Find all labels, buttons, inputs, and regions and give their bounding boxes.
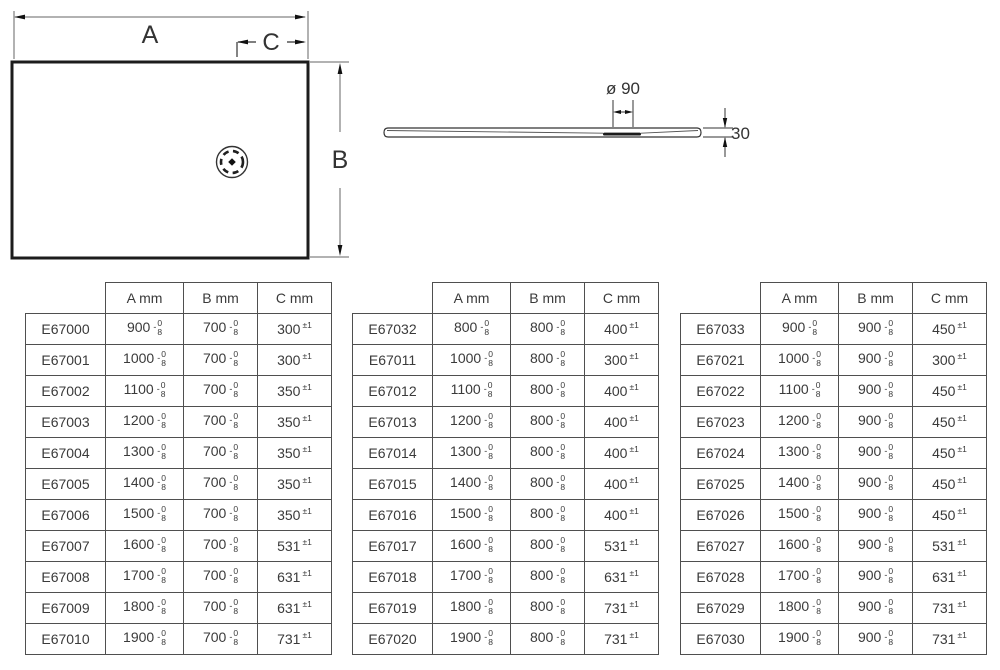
dimension-cell: 1400-08 [433,469,511,500]
dimension-cell: 800-08 [511,500,585,531]
dimension-cell: 700-08 [184,624,258,655]
dimension-cell: 900-08 [761,314,839,345]
product-code-cell: E67007 [26,531,106,562]
profile-view-drawing: ø 90 30 [375,70,775,180]
dimension-cell: 800-08 [511,469,585,500]
dimension-table-700: A mmB mmC mmE67000900-08700-08300±1E6700… [25,282,332,655]
column-header: C mm [585,283,659,314]
product-code-cell: E67032 [353,314,433,345]
dimension-cell: 900-08 [839,314,913,345]
table-corner-cell [353,283,433,314]
arrow-up-icon [338,63,343,74]
table-row: E670211000-08900-08300±1 [681,345,987,376]
product-code-cell: E67033 [681,314,761,345]
dimension-cell: 700-08 [184,531,258,562]
column-header: C mm [913,283,987,314]
dimension-cell: 700-08 [184,345,258,376]
spec-sheet: A C B [0,0,1000,670]
column-header: B mm [511,283,585,314]
product-code-cell: E67000 [26,314,106,345]
arrow-left-icon [613,110,621,114]
dimension-cell: 1600-08 [106,531,184,562]
product-code-cell: E67016 [353,500,433,531]
dimension-c-label: C [262,29,279,56]
table-corner-cell [26,283,106,314]
dimension-cell: 631±1 [913,562,987,593]
dimension-cell: 900-08 [106,314,184,345]
dimension-cell: 1200-08 [433,407,511,438]
dimension-cell: 1300-08 [433,438,511,469]
product-code-cell: E67020 [353,624,433,655]
dimension-cell: 900-08 [839,438,913,469]
dimension-cell: 1800-08 [761,593,839,624]
dimension-cell: 631±1 [258,562,332,593]
table-row: E67032800-08800-08400±1 [353,314,659,345]
dimension-cell: 731±1 [913,593,987,624]
dimension-cell: 1500-08 [761,500,839,531]
dimension-cell: 900-08 [839,345,913,376]
table-row: E670261500-08900-08450±1 [681,500,987,531]
dimension-cell: 900-08 [839,376,913,407]
product-code-cell: E67008 [26,562,106,593]
dimension-cell: 900-08 [839,593,913,624]
table-row: E670271600-08900-08531±1 [681,531,987,562]
dimension-table-800: A mmB mmC mmE67032800-08800-08400±1E6701… [352,282,659,655]
product-code-cell: E67018 [353,562,433,593]
dimension-cell: 800-08 [511,593,585,624]
dimension-cell: 400±1 [585,469,659,500]
dimension-cell: 1900-08 [433,624,511,655]
dimension-cell: 1700-08 [106,562,184,593]
dimension-thickness [703,108,733,157]
table-row: E670141300-08800-08400±1 [353,438,659,469]
product-code-cell: E67030 [681,624,761,655]
dimension-cell: 731±1 [913,624,987,655]
arrow-right-icon [625,110,633,114]
dimension-cell: 1000-08 [433,345,511,376]
product-code-cell: E67025 [681,469,761,500]
table-row: E670031200-08700-08350±1 [26,407,332,438]
dimension-cell: 800-08 [511,438,585,469]
dimension-cell: 1800-08 [433,593,511,624]
dimension-cell: 300±1 [258,314,332,345]
product-code-cell: E67006 [26,500,106,531]
dimension-cell: 350±1 [258,407,332,438]
table-row: E670151400-08800-08400±1 [353,469,659,500]
dimension-cell: 700-08 [184,314,258,345]
arrow-left-icon [14,15,25,20]
dimension-cell: 700-08 [184,376,258,407]
table-row: E670041300-08700-08350±1 [26,438,332,469]
dimension-cell: 1900-08 [106,624,184,655]
dimension-cell: 1400-08 [761,469,839,500]
product-code-cell: E67026 [681,500,761,531]
dimension-cell: 1300-08 [761,438,839,469]
tray-outline [12,62,308,258]
dimension-cell: 531±1 [258,531,332,562]
table-row: E670191800-08800-08731±1 [353,593,659,624]
dimension-cell: 450±1 [913,314,987,345]
dimension-cell: 1200-08 [761,407,839,438]
product-code-cell: E67010 [26,624,106,655]
product-code-cell: E67023 [681,407,761,438]
product-code-cell: E67011 [353,345,433,376]
product-code-cell: E67022 [681,376,761,407]
dimension-cell: 631±1 [585,562,659,593]
dimension-cell: 1600-08 [761,531,839,562]
product-code-cell: E67019 [353,593,433,624]
dimension-cell: 800-08 [511,345,585,376]
product-code-cell: E67024 [681,438,761,469]
dimension-cell: 800-08 [511,624,585,655]
product-code-cell: E67017 [353,531,433,562]
arrow-down-icon [723,118,727,128]
dimension-cell: 1400-08 [106,469,184,500]
table-row: E670061500-08700-08350±1 [26,500,332,531]
dimension-cell: 731±1 [258,624,332,655]
dimension-cell: 900-08 [839,562,913,593]
dimension-cell: 450±1 [913,407,987,438]
dimension-cell: 731±1 [585,624,659,655]
dimension-b-label: B [332,146,349,174]
product-code-cell: E67003 [26,407,106,438]
dimension-cell: 800-08 [511,531,585,562]
dimension-cell: 631±1 [258,593,332,624]
dimension-cell: 1900-08 [761,624,839,655]
product-code-cell: E67004 [26,438,106,469]
table-row: E670171600-08800-08531±1 [353,531,659,562]
dimension-cell: 1500-08 [433,500,511,531]
dimension-cell: 350±1 [258,438,332,469]
dimension-cell: 1700-08 [761,562,839,593]
column-header: A mm [106,283,184,314]
dimension-cell: 400±1 [585,314,659,345]
dimension-cell: 700-08 [184,593,258,624]
column-header: B mm [839,283,913,314]
dimension-cell: 400±1 [585,376,659,407]
dimension-cell: 450±1 [913,469,987,500]
dimension-cell: 300±1 [258,345,332,376]
dimension-cell: 800-08 [511,407,585,438]
dimension-cell: 1100-08 [433,376,511,407]
dimension-cell: 1600-08 [433,531,511,562]
dimension-cell: 900-08 [839,407,913,438]
table-row: E670121100-08800-08400±1 [353,376,659,407]
dimension-a-label: A [142,21,159,49]
plan-view-drawing: A C B [0,0,380,280]
column-header: A mm [761,283,839,314]
dimension-cell: 1000-08 [761,345,839,376]
table-row: E670221100-08900-08450±1 [681,376,987,407]
arrow-up-icon [723,137,727,147]
dimension-cell: 1300-08 [106,438,184,469]
column-header: B mm [184,283,258,314]
arrow-right-icon [295,40,306,45]
dimension-cell: 900-08 [839,531,913,562]
dimension-cell: 400±1 [585,438,659,469]
table-row: E670241300-08900-08450±1 [681,438,987,469]
thickness-label: 30 [731,124,750,143]
dimension-table-900: A mmB mmC mmE67033900-08900-08450±1E6702… [680,282,987,655]
dimension-cell: 300±1 [585,345,659,376]
dimension-cell: 450±1 [913,500,987,531]
product-code-cell: E67009 [26,593,106,624]
dimension-cell: 400±1 [585,500,659,531]
table-row: E670081700-08700-08631±1 [26,562,332,593]
product-code-cell: E67027 [681,531,761,562]
dimension-cell: 1100-08 [761,376,839,407]
dimension-cell: 731±1 [585,593,659,624]
dimension-cell: 531±1 [913,531,987,562]
table-row: E670291800-08900-08731±1 [681,593,987,624]
column-header: A mm [433,283,511,314]
table-row: E670021100-08700-08350±1 [26,376,332,407]
product-code-cell: E67005 [26,469,106,500]
table-row: E670091800-08700-08631±1 [26,593,332,624]
dimension-cell: 350±1 [258,500,332,531]
dimension-cell: 800-08 [511,314,585,345]
dimension-cell: 350±1 [258,376,332,407]
dimension-cell: 900-08 [839,500,913,531]
arrow-down-icon [338,245,343,256]
dimension-cell: 1200-08 [106,407,184,438]
dimension-cell: 450±1 [913,376,987,407]
table-row: E670161500-08800-08400±1 [353,500,659,531]
table-row: E670101900-08700-08731±1 [26,624,332,655]
drain-recess [603,133,641,136]
dimension-cell: 700-08 [184,407,258,438]
dimension-cell: 400±1 [585,407,659,438]
dimension-cell: 531±1 [585,531,659,562]
dimension-cell: 450±1 [913,438,987,469]
table-row: E670301900-08900-08731±1 [681,624,987,655]
dimension-cell: 800-08 [433,314,511,345]
drain-diameter-label: ø 90 [606,79,640,98]
dimension-cell: 300±1 [913,345,987,376]
dimension-cell: 700-08 [184,562,258,593]
product-code-cell: E67021 [681,345,761,376]
arrow-right-icon [295,15,306,20]
table-row: E670011000-08700-08300±1 [26,345,332,376]
dimension-cell: 350±1 [258,469,332,500]
table-row: E670251400-08900-08450±1 [681,469,987,500]
table-row: E670281700-08900-08631±1 [681,562,987,593]
dimension-cell: 1100-08 [106,376,184,407]
column-header: C mm [258,283,332,314]
product-code-cell: E67014 [353,438,433,469]
dimension-cell: 800-08 [511,562,585,593]
table-row: E67033900-08900-08450±1 [681,314,987,345]
product-code-cell: E67002 [26,376,106,407]
table-row: E670131200-08800-08400±1 [353,407,659,438]
dimension-cell: 900-08 [839,469,913,500]
dimension-cell: 1800-08 [106,593,184,624]
dimension-cell: 900-08 [839,624,913,655]
product-code-cell: E67028 [681,562,761,593]
product-code-cell: E67013 [353,407,433,438]
product-code-cell: E67015 [353,469,433,500]
product-code-cell: E67001 [26,345,106,376]
dimension-cell: 700-08 [184,438,258,469]
table-row: E670071600-08700-08531±1 [26,531,332,562]
table-corner-cell [681,283,761,314]
table-row: E670111000-08800-08300±1 [353,345,659,376]
dimension-cell: 1500-08 [106,500,184,531]
dimension-cell: 800-08 [511,376,585,407]
product-code-cell: E67012 [353,376,433,407]
table-row: E670181700-08800-08631±1 [353,562,659,593]
table-row: E670231200-08900-08450±1 [681,407,987,438]
table-row: E670201900-08800-08731±1 [353,624,659,655]
arrow-left-icon [237,40,248,45]
dimension-cell: 700-08 [184,469,258,500]
product-code-cell: E67029 [681,593,761,624]
table-row: E670051400-08700-08350±1 [26,469,332,500]
dimension-cell: 1700-08 [433,562,511,593]
table-row: E67000900-08700-08300±1 [26,314,332,345]
dimension-cell: 1000-08 [106,345,184,376]
dimension-drain-diameter [613,100,633,127]
dimension-cell: 700-08 [184,500,258,531]
